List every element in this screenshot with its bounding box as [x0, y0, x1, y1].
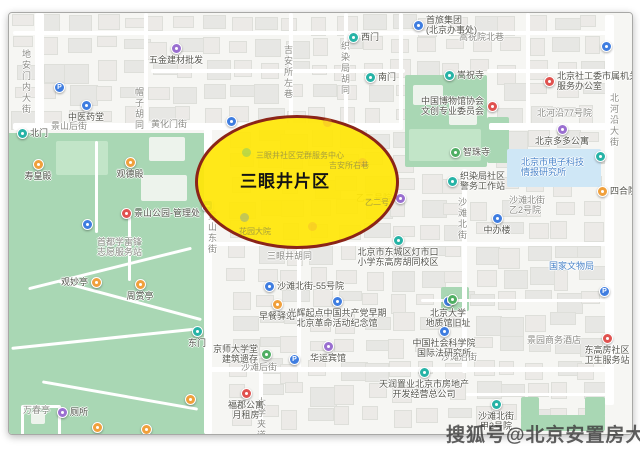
building-block: [556, 247, 580, 258]
building-block: [314, 39, 327, 55]
building-block: [585, 202, 600, 215]
poi-label[interactable]: 厕所: [70, 407, 88, 417]
poi-marker[interactable]: [82, 219, 93, 230]
area-label: 北京市电子科技情报研究所: [521, 157, 584, 177]
building-block: [255, 85, 278, 103]
poi-label[interactable]: 中办楼: [437, 225, 557, 235]
poi-marker[interactable]: [450, 147, 461, 158]
building-block: [126, 19, 144, 28]
building-block: [311, 388, 335, 406]
building-block: [335, 386, 353, 404]
building-block: [477, 248, 499, 264]
area-label: 国家文物局: [549, 261, 594, 271]
street-label: 织染局胡同: [340, 41, 350, 96]
building-block: [423, 175, 443, 193]
poi-marker[interactable]: [439, 326, 450, 337]
building-block: [417, 409, 437, 423]
poi-label[interactable]: 首旅集团(北京办事处): [426, 15, 477, 35]
building-block: [505, 271, 528, 287]
screenshot: 三眼井片区 地安门内大街帽子胡同景山后街黄化门街吉安所左巷织染局胡同嵩祝院北巷景…: [0, 0, 640, 456]
poi-marker[interactable]: [597, 186, 608, 197]
building-block: [335, 407, 348, 424]
road: [489, 123, 609, 130]
building-block: [69, 39, 91, 53]
poi-marker[interactable]: [332, 296, 343, 307]
poi-marker[interactable]: [141, 424, 152, 435]
building-block: [314, 85, 336, 96]
building-block: [234, 293, 250, 309]
poi-label[interactable]: 北门: [30, 128, 48, 138]
building-block: [423, 272, 445, 287]
road: [144, 13, 148, 125]
poi-marker[interactable]: [447, 294, 458, 305]
building-block: [499, 249, 519, 267]
building-block: [230, 42, 246, 52]
building-block: [310, 246, 332, 265]
building-block: [204, 16, 225, 28]
building-block: [45, 65, 67, 82]
building-block: [552, 383, 566, 399]
building-block: [70, 16, 91, 31]
poi-label[interactable]: 嵩祝寺: [457, 70, 484, 80]
poi-label[interactable]: 四合院: [610, 186, 633, 196]
building-block: [229, 246, 244, 257]
poi-marker[interactable]: [419, 367, 430, 378]
poi-label[interactable]: 观妙亭: [61, 277, 88, 287]
building-block: [150, 108, 176, 120]
building-block: [551, 313, 575, 324]
street-label: 首都学雷锋志愿服务站: [97, 237, 142, 257]
building-block: [586, 37, 599, 53]
building-block: [149, 88, 169, 98]
poi-label[interactable]: 观德殿: [70, 169, 190, 179]
poi-marker[interactable]: [57, 407, 68, 418]
building-block: [528, 84, 546, 92]
building-block: [501, 337, 523, 350]
building-block: [529, 247, 550, 260]
map-canvas[interactable]: 三眼井片区 地安门内大街帽子胡同景山后街黄化门街吉安所左巷织染局胡同嵩祝院北巷景…: [8, 12, 633, 435]
poi-marker[interactable]: [365, 72, 376, 83]
poi-marker[interactable]: [125, 157, 136, 168]
street-label: 地安门内大街: [21, 49, 31, 115]
building-block: [281, 337, 298, 352]
road: [466, 393, 608, 396]
street-label: 万春亭: [23, 405, 50, 415]
poi-label[interactable]: 北京大学地质馆旧址: [388, 308, 508, 328]
poi-marker[interactable]: [33, 159, 44, 170]
poi-marker[interactable]: [348, 32, 359, 43]
poi-label[interactable]: 北京多多公寓: [502, 136, 622, 146]
poi-marker[interactable]: [81, 100, 92, 111]
road: [526, 13, 530, 125]
building-block: [418, 38, 434, 51]
road: [35, 13, 44, 125]
park-area: [149, 137, 185, 161]
poi-marker[interactable]: [91, 277, 102, 288]
building-block: [256, 18, 277, 30]
map-photo: 三眼井片区 地安门内大街帽子胡同景山后街黄化门街吉安所左巷织染局胡同嵩祝院北巷景…: [8, 12, 633, 435]
poi-label[interactable]: 北京市东城区灯市口小学东高房胡同校区: [338, 247, 458, 267]
building-block: [586, 317, 607, 332]
poi-label[interactable]: 天润置业北京市房地产开发经营总公司: [364, 379, 484, 399]
building-block: [147, 17, 162, 30]
building-block: [257, 296, 273, 306]
park-path: [95, 141, 98, 233]
building-block: [99, 15, 119, 29]
poi-marker[interactable]: [487, 101, 498, 112]
poi-marker[interactable]: [557, 124, 568, 135]
building-block: [309, 409, 333, 421]
poi-marker[interactable]: [192, 326, 203, 337]
parking-icon[interactable]: P: [599, 286, 610, 297]
street-label: 三眼井胡同: [267, 251, 312, 261]
building-block: [205, 85, 225, 97]
poi-label[interactable]: 京师大学堂建筑遗存: [213, 344, 258, 364]
building-block: [180, 39, 206, 51]
building-block: [233, 18, 252, 31]
building-block: [14, 37, 32, 46]
building-block: [261, 338, 281, 346]
building-block: [531, 39, 544, 55]
highlight-label: 三眼井片区: [183, 112, 387, 246]
poi-label[interactable]: 沙滩北街-55号院: [277, 281, 344, 291]
park-area: [585, 397, 605, 417]
building-block: [174, 17, 193, 27]
poi-label[interactable]: 北京社工委市属机关服务办公室: [557, 71, 633, 91]
poi-marker[interactable]: [272, 299, 283, 310]
poi-marker[interactable]: [185, 394, 196, 405]
building-block: [204, 38, 219, 53]
building-block: [555, 271, 567, 289]
building-block: [423, 201, 446, 217]
poi-marker[interactable]: [491, 399, 502, 410]
building-block: [260, 385, 282, 394]
poi-label[interactable]: 福郡公寓月租房: [186, 400, 306, 420]
street-label: 帽子胡同: [134, 87, 144, 131]
building-block: [13, 15, 33, 25]
building-block: [227, 269, 244, 279]
building-block: [471, 203, 486, 220]
poi-marker[interactable]: [92, 422, 103, 433]
poi-marker[interactable]: [171, 43, 182, 54]
building-block: [98, 37, 116, 46]
poi-marker[interactable]: [17, 128, 28, 139]
poi-marker[interactable]: [121, 208, 132, 219]
poi-label[interactable]: 智珠寺: [463, 147, 490, 157]
street-label: 景山后街: [51, 121, 87, 131]
building-block: [578, 247, 600, 257]
poi-label[interactable]: 中医药堂: [26, 112, 146, 122]
poi-marker[interactable]: [602, 333, 613, 344]
poi-marker[interactable]: [444, 70, 455, 81]
building-block: [557, 203, 574, 214]
building-block: [174, 88, 196, 103]
street-label: 沙滩北街乙2号院: [509, 195, 545, 215]
building-block: [393, 272, 415, 291]
building-block: [42, 38, 57, 54]
poi-marker[interactable]: [393, 235, 404, 246]
building-block: [286, 383, 302, 392]
poi-marker[interactable]: [413, 20, 424, 31]
road: [13, 31, 609, 35]
building-block: [556, 19, 580, 29]
building-block: [471, 60, 488, 69]
building-block: [97, 87, 111, 100]
poi-label[interactable]: 中国博物馆协会文创专业委员会: [421, 96, 484, 116]
poi-marker[interactable]: [241, 388, 252, 399]
poi-marker[interactable]: [135, 279, 146, 290]
building-block: [553, 38, 579, 51]
poi-label[interactable]: 东高房社区卫生服务站: [547, 345, 633, 365]
poi-label[interactable]: 华运宾馆: [268, 353, 388, 363]
poi-marker[interactable]: [261, 349, 272, 360]
poi-label[interactable]: 中国社会科学院国际法研究所: [384, 338, 504, 358]
building-block: [259, 270, 277, 281]
poi-label[interactable]: 西门: [361, 32, 379, 42]
poi-label[interactable]: 南门: [378, 72, 396, 82]
poi-marker[interactable]: [323, 341, 334, 352]
poi-marker[interactable]: [595, 151, 606, 162]
building-block: [363, 294, 377, 304]
street-label: 黄化门街: [151, 119, 187, 129]
poi-marker[interactable]: [544, 76, 555, 87]
building-block: [526, 316, 545, 331]
poi-label[interactable]: 光辉起点中国共产党早期北京革命活动纪念馆: [277, 308, 397, 328]
parking-icon[interactable]: P: [289, 354, 300, 365]
watermark: 搜狐号@北京安置房大全: [446, 420, 640, 447]
building-block: [478, 271, 496, 286]
street-label: 景园商务酒店: [527, 335, 581, 345]
building-block: [65, 65, 87, 83]
road: [297, 246, 301, 368]
building-block: [231, 86, 255, 95]
building-block: [395, 411, 411, 427]
building-block: [585, 223, 604, 241]
poi-marker[interactable]: [492, 213, 503, 224]
poi-marker[interactable]: [447, 176, 458, 187]
building-block: [368, 273, 383, 290]
poi-marker[interactable]: [601, 41, 612, 52]
parking-icon[interactable]: P: [54, 82, 65, 93]
building-block: [340, 292, 361, 301]
building-block: [558, 294, 582, 313]
building-block: [581, 16, 595, 26]
building-block: [256, 40, 281, 56]
poi-marker[interactable]: [264, 281, 275, 292]
building-block: [335, 340, 353, 351]
poi-label[interactable]: 织染局社区警务工作站: [460, 171, 505, 191]
road: [399, 13, 403, 125]
poi-label[interactable]: 周赏亭: [80, 291, 200, 301]
street-label: 吉安所左巷: [283, 45, 293, 100]
building-block: [314, 290, 332, 306]
building-block: [364, 15, 386, 28]
building-block: [99, 61, 116, 80]
poi-label[interactable]: 五金建材批发: [116, 55, 236, 65]
building-block: [370, 86, 394, 101]
building-block: [363, 407, 377, 419]
street-label: 北河沿77号院: [537, 108, 592, 118]
